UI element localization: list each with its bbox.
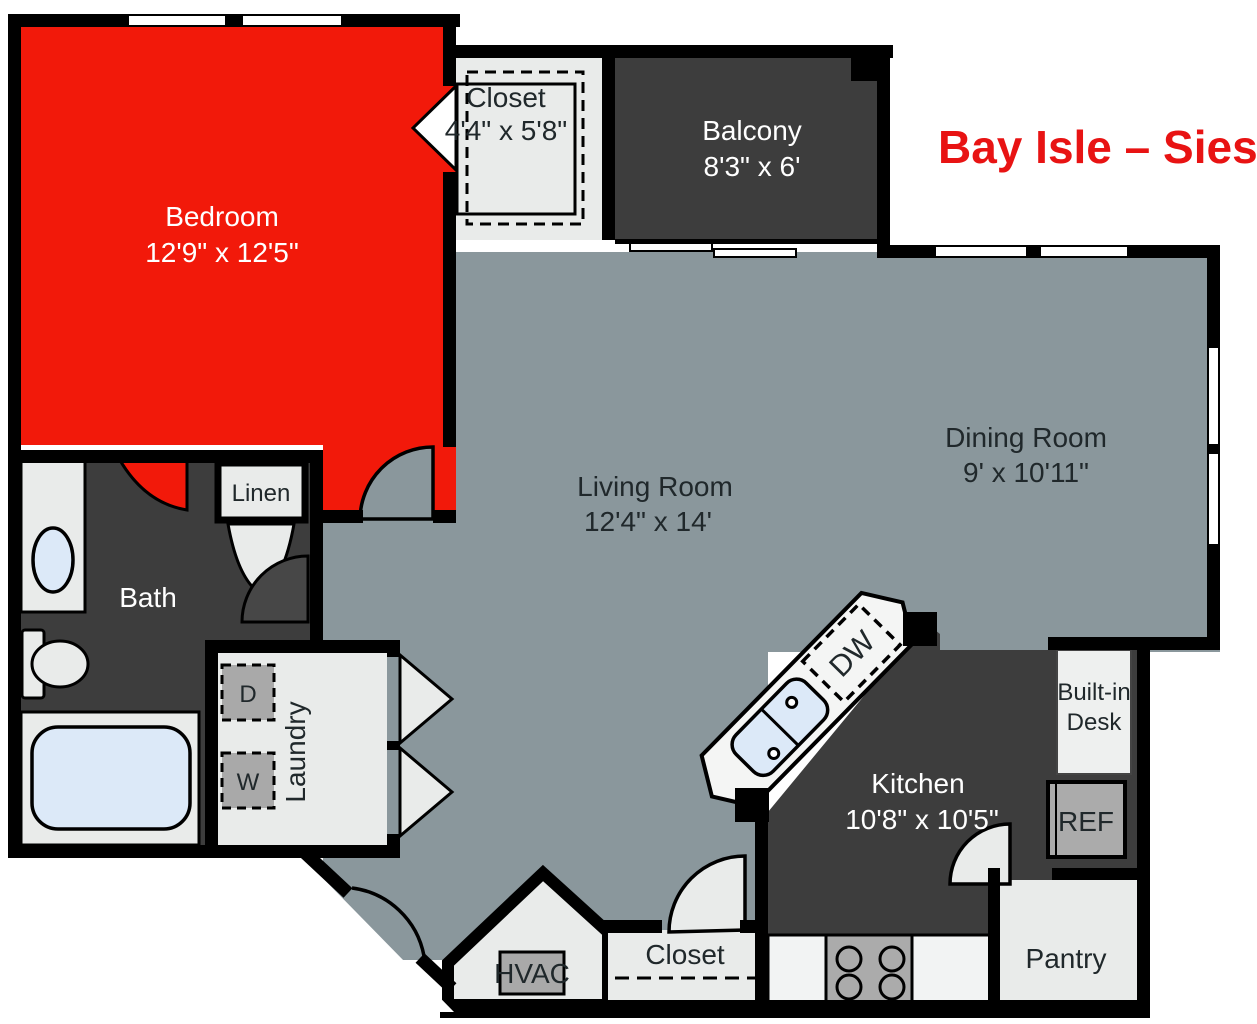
laundry-label: Laundry [280, 701, 311, 802]
desk-label-line1: Built-in [1057, 679, 1130, 706]
bedroom-label: Bedroom [165, 201, 279, 232]
desk-label-line2: Desk [1067, 709, 1123, 736]
bedroom-window-2 [242, 15, 342, 26]
bedroom-window-1 [128, 15, 226, 26]
closet-bottom-label: Closet [645, 939, 725, 970]
floor-plan-svg: DW [0, 0, 1257, 1024]
dining-room-dims: 9' x 10'11" [963, 457, 1089, 488]
bedroom-floor [21, 27, 456, 445]
bath-label: Bath [119, 582, 177, 613]
balcony-label: Balcony [702, 115, 802, 146]
balcony-dims: 8'3" x 6' [704, 151, 801, 182]
dining-window-top-1 [935, 246, 1027, 257]
dining-window-right-2 [1208, 453, 1219, 545]
balcony-column [851, 45, 890, 81]
kitchen-label: Kitchen [871, 768, 964, 799]
hvac-label: HVAC [494, 958, 570, 989]
bathtub [32, 727, 190, 829]
living-room-dims: 12'4" x 14' [584, 506, 712, 537]
bedroom-area [21, 27, 456, 513]
sliding-door-panel-1 [630, 243, 712, 251]
washer-label: W [237, 769, 260, 796]
dining-room-label: Dining Room [945, 422, 1107, 453]
refrigerator-label: REF [1058, 806, 1114, 837]
dining-window-right-1 [1208, 347, 1219, 445]
bath-sink [33, 528, 73, 592]
floor-plan: DW [0, 0, 1257, 1024]
kitchen-dims: 10'8" x 10'5" [845, 804, 999, 835]
dryer-label: D [239, 681, 256, 708]
pantry-floor [1000, 880, 1137, 1000]
sliding-door-panel-2 [714, 249, 796, 257]
closet-top-dims: 4'4" x 5'8" [445, 115, 567, 146]
linen-label: Linen [232, 480, 291, 507]
balcony-floor [615, 58, 877, 240]
plan-title: Bay Isle – Siesta [938, 121, 1257, 173]
bedroom-dims: 12'9" x 12'5" [145, 237, 299, 268]
island-column-top [903, 612, 937, 646]
toilet-bowl [32, 641, 88, 687]
pantry-label: Pantry [1026, 943, 1107, 974]
living-room-label: Living Room [577, 471, 733, 502]
dining-window-top-2 [1040, 246, 1128, 257]
closet-top-label: Closet [466, 82, 546, 113]
